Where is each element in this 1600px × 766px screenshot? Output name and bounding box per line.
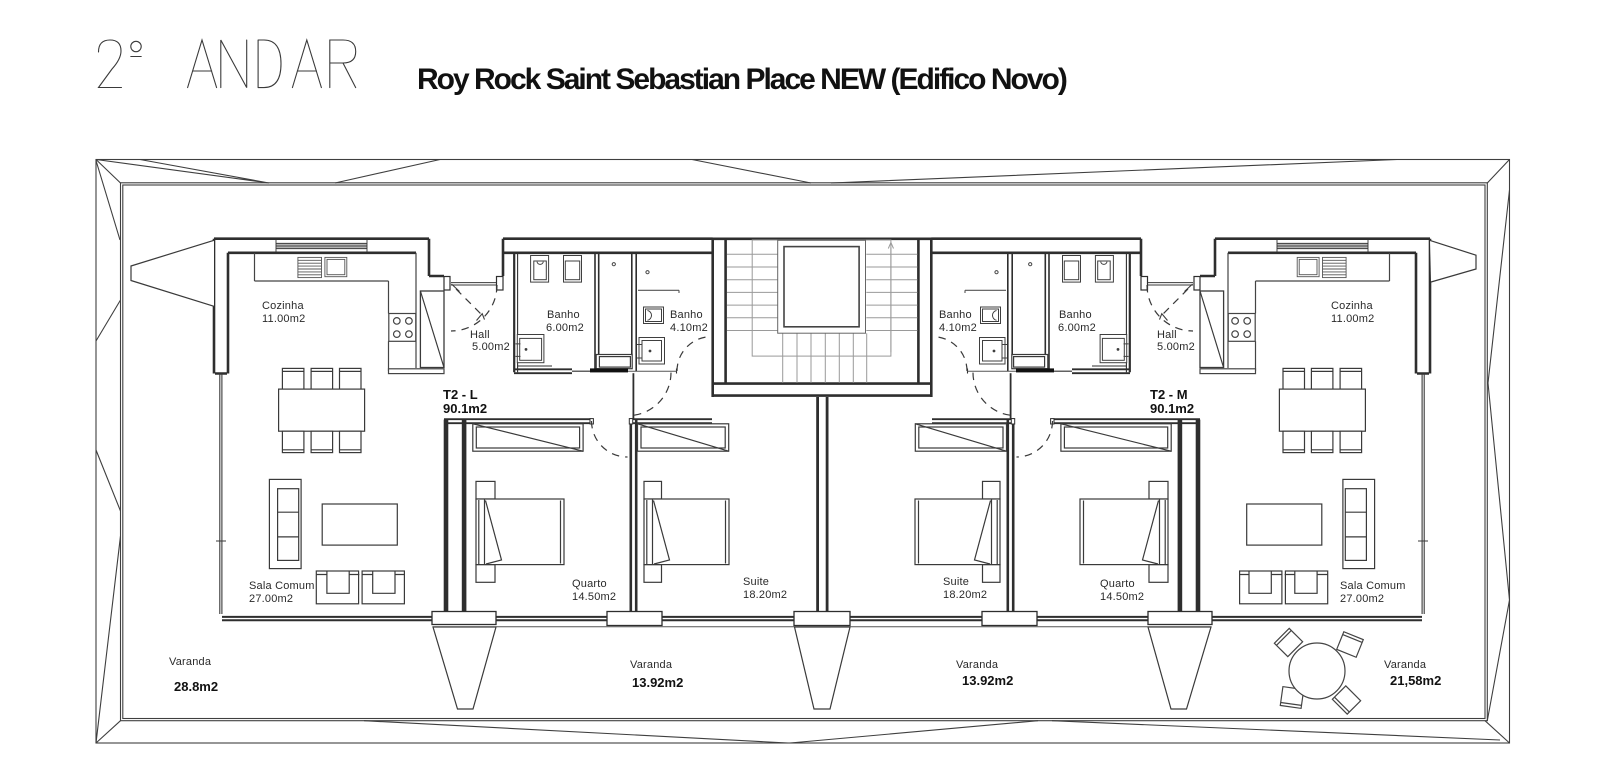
svg-text:Banho: Banho [1059, 309, 1092, 321]
svg-text:18.20m2: 18.20m2 [943, 589, 987, 601]
svg-text:Sala Comum: Sala Comum [249, 580, 315, 592]
svg-text:Banho: Banho [939, 309, 972, 321]
svg-text:28.8m2: 28.8m2 [174, 679, 218, 694]
svg-text:18.20m2: 18.20m2 [743, 589, 787, 601]
svg-text:11.00m2: 11.00m2 [262, 313, 305, 325]
svg-text:6.00m2: 6.00m2 [1058, 322, 1096, 334]
svg-text:21,58m2: 21,58m2 [1390, 673, 1441, 688]
svg-text:Cozinha: Cozinha [262, 300, 304, 312]
svg-text:Quarto: Quarto [1100, 578, 1135, 590]
svg-text:Suite: Suite [943, 576, 969, 588]
svg-text:Varanda: Varanda [169, 656, 212, 668]
svg-text:Hall: Hall [470, 329, 490, 341]
svg-text:4.10m2: 4.10m2 [670, 322, 708, 334]
svg-text:14.50m2: 14.50m2 [572, 591, 616, 603]
svg-text:27.00m2: 27.00m2 [1340, 593, 1384, 605]
svg-text:4.10m2: 4.10m2 [939, 322, 977, 334]
svg-text:Cozinha: Cozinha [1331, 300, 1373, 312]
svg-text:27.00m2: 27.00m2 [249, 593, 293, 605]
svg-text:5.00m2: 5.00m2 [472, 341, 510, 353]
svg-text:13.92m2: 13.92m2 [962, 673, 1013, 688]
svg-text:11.00m2: 11.00m2 [1331, 313, 1374, 325]
svg-text:Hall: Hall [1157, 329, 1177, 341]
svg-text:Banho: Banho [670, 309, 703, 321]
svg-text:5.00m2: 5.00m2 [1157, 341, 1195, 353]
svg-text:6.00m2: 6.00m2 [546, 322, 584, 334]
svg-text:Varanda: Varanda [630, 659, 673, 671]
svg-text:Sala Comum: Sala Comum [1340, 580, 1406, 592]
svg-text:Varanda: Varanda [1384, 659, 1427, 671]
svg-text:T2 - M: T2 - M [1150, 387, 1188, 402]
svg-text:Banho: Banho [547, 309, 580, 321]
svg-text:Varanda: Varanda [956, 659, 999, 671]
svg-text:Quarto: Quarto [572, 578, 607, 590]
svg-text:90.1m2: 90.1m2 [443, 401, 487, 416]
svg-text:90.1m2: 90.1m2 [1150, 401, 1194, 416]
svg-text:Suite: Suite [743, 576, 769, 588]
svg-text:Roy Rock Saint Sebastian Place: Roy Rock Saint Sebastian Place NEW (Edif… [417, 63, 1067, 96]
svg-text:14.50m2: 14.50m2 [1100, 591, 1144, 603]
svg-text:13.92m2: 13.92m2 [632, 675, 683, 690]
svg-text:T2 - L: T2 - L [443, 387, 478, 402]
